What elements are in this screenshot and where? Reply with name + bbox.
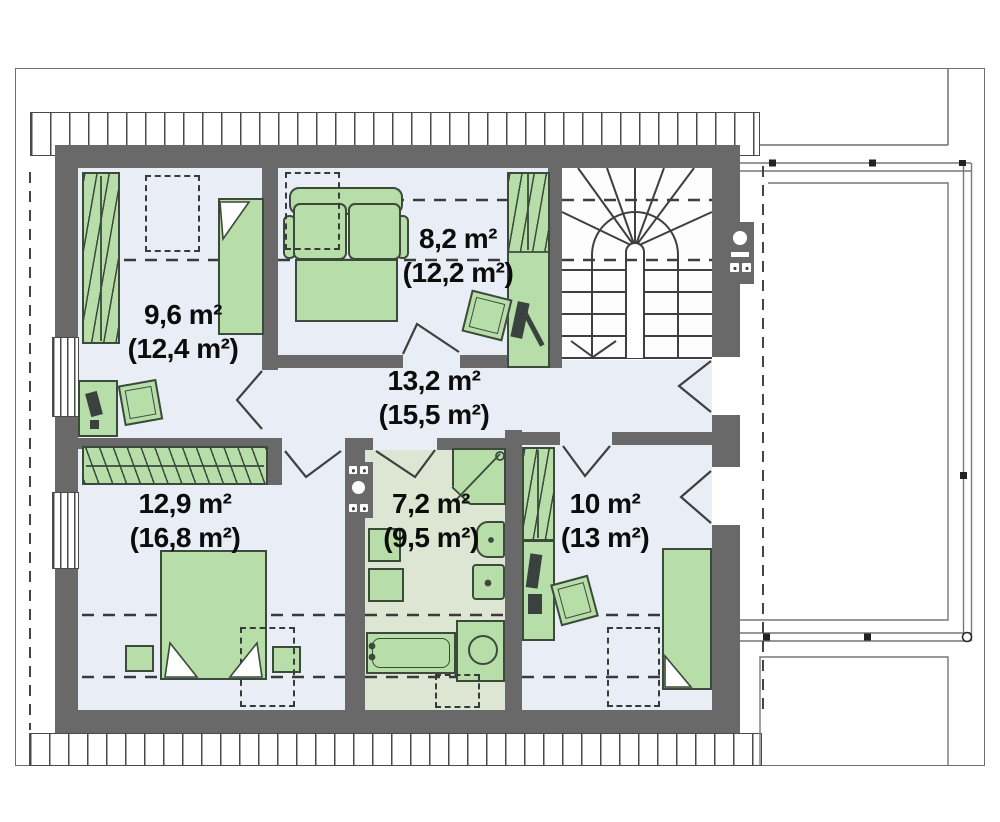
staircase bbox=[562, 168, 712, 358]
basin-dot bbox=[489, 538, 493, 542]
roof-edge-line bbox=[760, 69, 948, 145]
lower-terrace-edge bbox=[760, 657, 948, 765]
door-bedroom-top-center bbox=[403, 324, 459, 354]
bed-fold bbox=[665, 656, 691, 687]
toilet-dot bbox=[486, 581, 491, 586]
tub-faucet bbox=[370, 644, 375, 649]
door-balcony-hall bbox=[679, 361, 711, 412]
floor-plan: 9,6 m²(12,4 m²) 8,2 m²(12,2 m²) 13,2 m²(… bbox=[0, 0, 1000, 822]
door-bathroom bbox=[376, 450, 435, 477]
bed-fold bbox=[165, 643, 197, 677]
room-label-bedroom-bottom-right: 10 m²(13 m²) bbox=[561, 487, 649, 555]
plan-linework bbox=[0, 0, 1000, 822]
door-bedroom-bottom-right bbox=[563, 446, 610, 476]
room-label-bedroom-top-left: 9,6 m²(12,4 m²) bbox=[128, 298, 239, 366]
railing-posts bbox=[763, 160, 972, 642]
tub-faucet bbox=[370, 655, 375, 660]
door-bedroom-top-left bbox=[237, 371, 262, 429]
room-label-bedroom-top-center: 8,2 m²(12,2 m²) bbox=[403, 222, 514, 290]
terrace-floor-edge bbox=[740, 183, 948, 620]
bed-fold bbox=[230, 643, 262, 677]
bed-fold bbox=[220, 202, 249, 239]
door-bedroom-bottom-left bbox=[285, 451, 341, 477]
room-label-bedroom-bottom-left: 12,9 m²(16,8 m²) bbox=[130, 487, 241, 555]
door-balcony-bedroom bbox=[681, 471, 711, 523]
room-label-hall: 13,2 m²(15,5 m²) bbox=[379, 364, 490, 432]
balcony-railing bbox=[740, 163, 972, 765]
stair-direction-arrow bbox=[571, 341, 616, 357]
room-label-bathroom: 7,2 m²(9,5 m²) bbox=[383, 487, 479, 555]
